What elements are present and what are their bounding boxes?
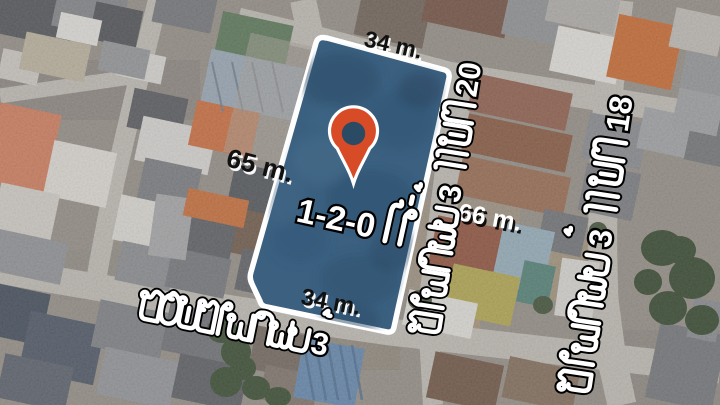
- svg-text:18: 18: [599, 93, 640, 134]
- svg-text:20: 20: [448, 60, 488, 100]
